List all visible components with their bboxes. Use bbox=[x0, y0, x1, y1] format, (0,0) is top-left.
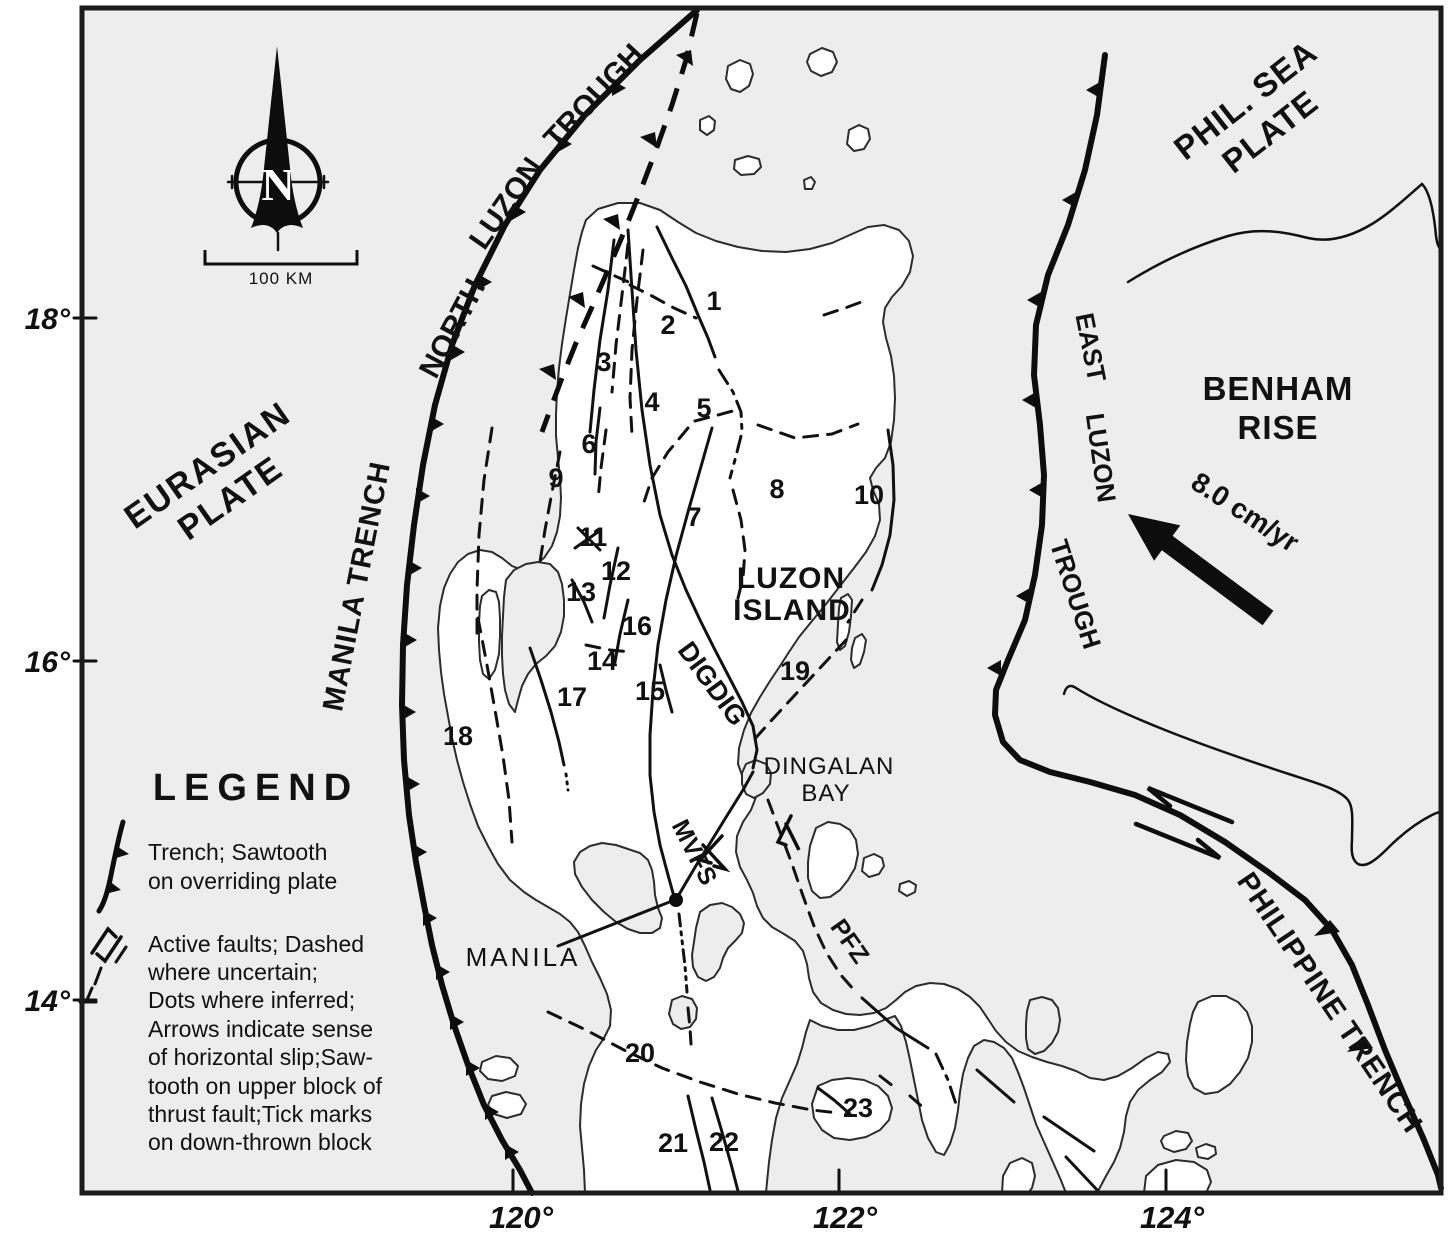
fault-number-1: 1 bbox=[706, 286, 721, 316]
legend-trench-text-2: on overriding plate bbox=[148, 868, 337, 894]
lat-label-18: 18° bbox=[25, 303, 71, 336]
benham-rise-label-2: RISE bbox=[1237, 409, 1318, 446]
fault-number-22: 22 bbox=[709, 1127, 739, 1157]
fault-number-13: 13 bbox=[566, 577, 596, 607]
fault-number-9: 9 bbox=[548, 463, 563, 493]
babuyan-island-4 bbox=[734, 156, 761, 175]
legend-fault-text-6: tooth on upper block of bbox=[148, 1073, 383, 1099]
compass-north-letter: N bbox=[261, 159, 294, 210]
fault-number-6: 6 bbox=[581, 429, 596, 459]
fault-number-8: 8 bbox=[769, 474, 784, 504]
tectonic-map-figure: N 100 KM 18° 16° 14° 120° 122° 124° EURA… bbox=[0, 0, 1453, 1243]
scale-bar-label: 100 KM bbox=[249, 269, 314, 288]
legend-fault-text-7: thrust fault;Tick marks bbox=[148, 1101, 372, 1127]
fault-number-7: 7 bbox=[686, 502, 701, 532]
fault-number-18: 18 bbox=[443, 721, 473, 751]
fault-number-2: 2 bbox=[660, 310, 675, 340]
map-canvas: N 100 KM 18° 16° 14° 120° 122° 124° EURA… bbox=[0, 0, 1453, 1243]
taal-lake bbox=[669, 996, 697, 1029]
legend-fault-text-4: Arrows indicate sense bbox=[148, 1016, 373, 1042]
lon-label-122: 122° bbox=[813, 1200, 878, 1235]
fault-number-15: 15 bbox=[635, 676, 665, 706]
polillo-islet-2 bbox=[899, 881, 916, 896]
legend-trench-text-1: Trench; Sawtooth bbox=[148, 839, 327, 865]
fault-number-4: 4 bbox=[644, 387, 659, 417]
lon-label-120: 120° bbox=[489, 1200, 554, 1235]
babuyan-island-2 bbox=[807, 48, 837, 76]
fault-number-16: 16 bbox=[622, 611, 652, 641]
fault-number-11: 11 bbox=[579, 522, 608, 552]
babuyan-island-6 bbox=[804, 177, 815, 189]
benham-rise-label-1: BENHAM bbox=[1203, 370, 1354, 407]
se-islet-2 bbox=[1196, 1144, 1216, 1159]
manila-city-label: MANILA bbox=[466, 942, 581, 972]
legend-fault-text-2: where uncertain; bbox=[147, 959, 318, 985]
legend-fault-text-8: on down-thrown block bbox=[148, 1129, 372, 1155]
legend-fault-text-1: Active faults; Dashed bbox=[148, 931, 364, 957]
fault-number-10: 10 bbox=[854, 480, 884, 510]
luzon-island-label-1: LUZON bbox=[737, 562, 845, 595]
lat-label-16: 16° bbox=[25, 646, 71, 679]
fault-number-3: 3 bbox=[596, 347, 611, 377]
legend-fault-text-5: of horizontal slip;Saw- bbox=[148, 1044, 373, 1070]
legend-fault-text-3: Dots where inferred; bbox=[148, 987, 355, 1013]
fault-number-17: 17 bbox=[557, 682, 587, 712]
fault-number-20: 20 bbox=[625, 1038, 655, 1068]
legend-title: LEGEND bbox=[153, 767, 359, 809]
fault-number-23: 23 bbox=[843, 1093, 873, 1123]
manila-city-dot bbox=[669, 893, 683, 907]
bolinao-sliver-island bbox=[479, 590, 500, 679]
dingalan-bay-label-1: DINGALAN bbox=[764, 753, 895, 780]
lat-label-14: 14° bbox=[25, 985, 71, 1018]
lubang-island-1 bbox=[480, 1056, 518, 1081]
dingalan-bay-label-2: BAY bbox=[801, 780, 850, 807]
fault-number-5: 5 bbox=[696, 393, 711, 423]
lon-label-124: 124° bbox=[1140, 1200, 1205, 1235]
fault-number-21: 21 bbox=[658, 1128, 688, 1158]
fault-number-19: 19 bbox=[780, 656, 810, 686]
fault-number-14: 14 bbox=[587, 646, 617, 676]
luzon-island-label-2: ISLAND bbox=[733, 594, 851, 627]
fault-number-12: 12 bbox=[601, 556, 631, 586]
babuyan-island-1 bbox=[726, 60, 753, 92]
